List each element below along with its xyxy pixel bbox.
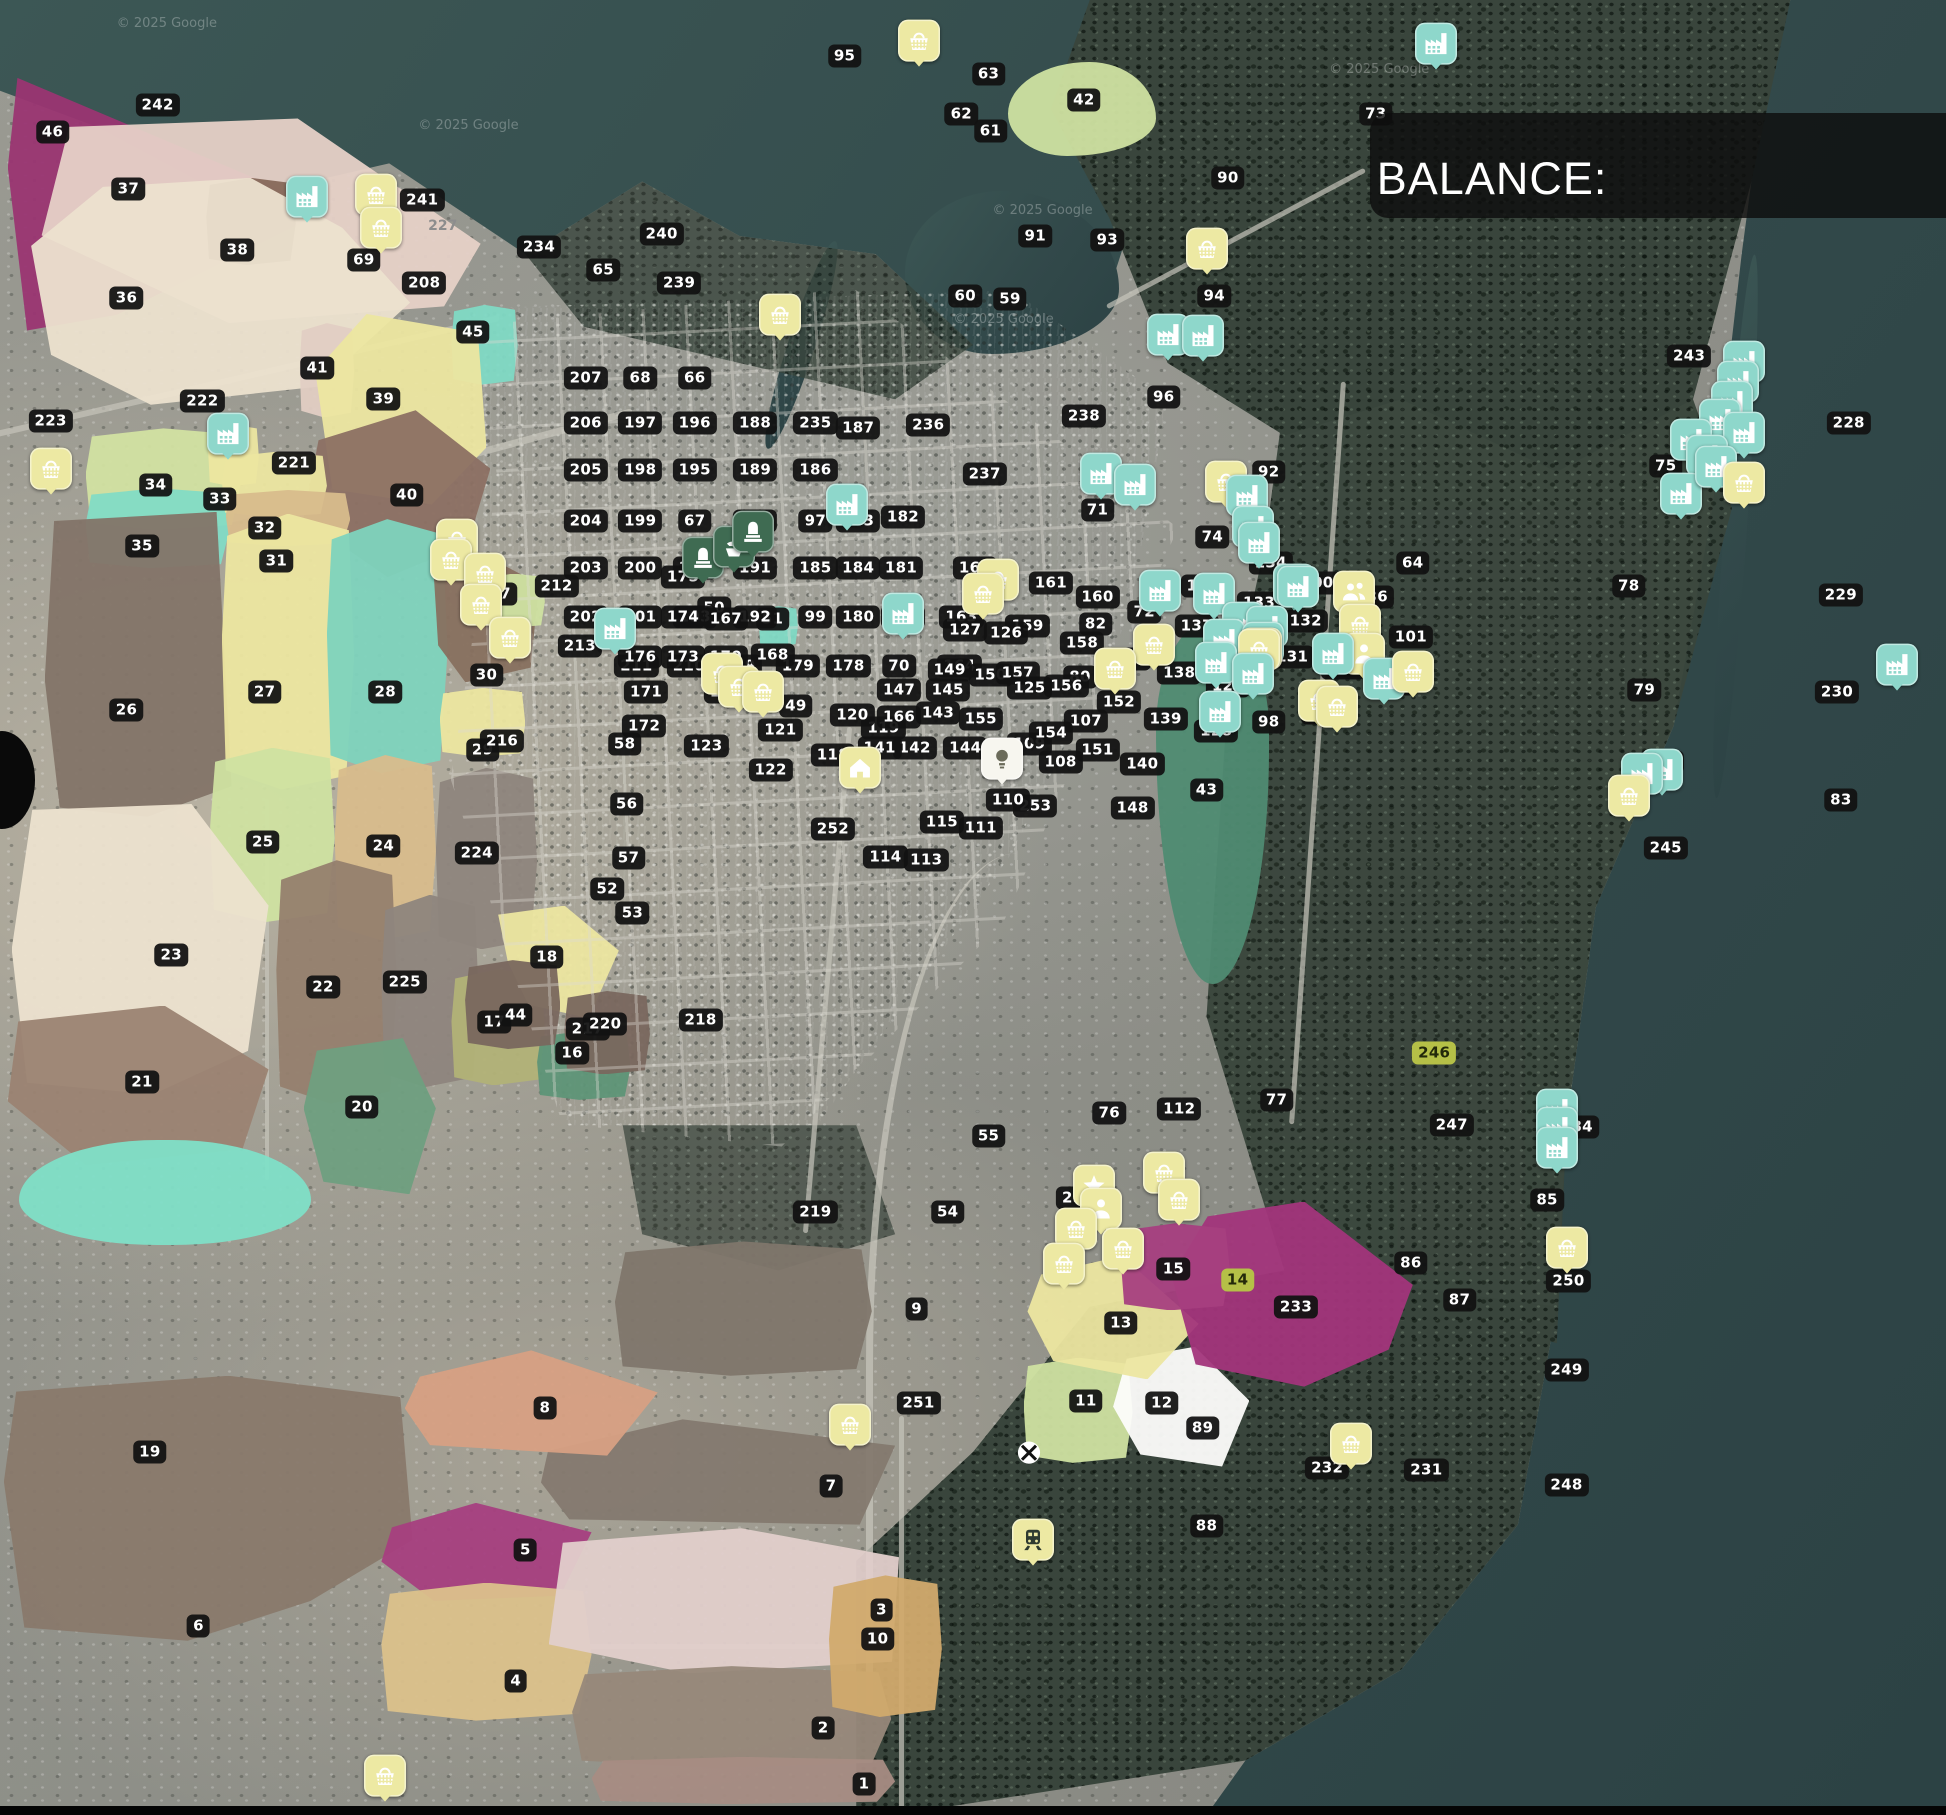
factory-icon[interactable] xyxy=(1114,464,1156,506)
crossing-icon[interactable] xyxy=(1008,1431,1050,1473)
parcel-badge-52[interactable]: 52 xyxy=(590,878,623,901)
parcel-badge-23[interactable]: 23 xyxy=(154,943,187,966)
parcel-badge-83[interactable]: 83 xyxy=(1824,789,1857,812)
basket-icon[interactable] xyxy=(962,573,1004,615)
parcel-badge-196[interactable]: 196 xyxy=(673,411,717,434)
parcel-badge-151[interactable]: 151 xyxy=(1075,738,1119,761)
parcel-badge-143[interactable]: 143 xyxy=(916,702,960,725)
factory-icon[interactable] xyxy=(1139,569,1181,611)
parcel-badge-148[interactable]: 148 xyxy=(1110,796,1154,819)
parcel-badge-205[interactable]: 205 xyxy=(564,459,608,482)
parcel-badge-200[interactable]: 200 xyxy=(618,557,662,580)
parcel-badge-208[interactable]: 208 xyxy=(402,272,446,295)
parcel-badge-60[interactable]: 60 xyxy=(948,284,981,307)
parcel-badge-79[interactable]: 79 xyxy=(1628,678,1661,701)
parcel-badge-218[interactable]: 218 xyxy=(678,1009,722,1032)
basket-icon[interactable] xyxy=(898,19,940,61)
parcel-badge-15[interactable]: 15 xyxy=(1157,1257,1190,1280)
map-watermark: © 2025 Google xyxy=(1329,62,1429,77)
parcel-badge-49[interactable]: 49 xyxy=(779,695,812,718)
factory-icon[interactable] xyxy=(207,413,249,455)
parcel-badge-206[interactable]: 206 xyxy=(564,411,608,434)
basket-icon[interactable] xyxy=(1186,228,1228,270)
parcel-region[interactable] xyxy=(19,1140,311,1245)
map-watermark: © 2025 Google xyxy=(954,312,1054,327)
parcel-badge-161[interactable]: 161 xyxy=(1029,571,1073,594)
parcel-badge-57[interactable]: 57 xyxy=(612,847,645,870)
parcel-badge-230[interactable]: 230 xyxy=(1815,680,1859,703)
parcel-badge-219[interactable]: 219 xyxy=(793,1201,837,1224)
parcel-badge-38[interactable]: 38 xyxy=(221,239,254,262)
basket-icon[interactable] xyxy=(1546,1226,1588,1268)
parcel-badge-197[interactable]: 197 xyxy=(618,411,662,434)
parcel-badge-28[interactable]: 28 xyxy=(369,680,402,703)
parcel-badge-61[interactable]: 61 xyxy=(974,119,1007,142)
parcel-badge-4[interactable]: 4 xyxy=(504,1669,527,1692)
parcel-badge-167[interactable]: 167 xyxy=(704,607,748,630)
parcel-badge-96[interactable]: 96 xyxy=(1147,386,1180,409)
parcel-badge-18[interactable]: 18 xyxy=(530,945,563,968)
parcel-badge-6[interactable]: 6 xyxy=(187,1615,210,1638)
parcel-badge-139[interactable]: 139 xyxy=(1144,707,1188,730)
parcel-badge-173[interactable]: 173 xyxy=(661,646,705,669)
parcel-badge-89[interactable]: 89 xyxy=(1186,1417,1219,1440)
parcel-badge-26[interactable]: 26 xyxy=(110,698,143,721)
parcel-badge-204[interactable]: 204 xyxy=(564,509,608,532)
parcel-badge-21[interactable]: 21 xyxy=(125,1070,158,1093)
parcel-badge-87[interactable]: 87 xyxy=(1443,1288,1476,1311)
parcel-badge-113[interactable]: 113 xyxy=(904,849,948,872)
basket-icon[interactable] xyxy=(489,616,531,658)
parcel-badge-41[interactable]: 41 xyxy=(300,357,333,380)
parcel-region[interactable] xyxy=(327,519,448,773)
parcel-badge-229[interactable]: 229 xyxy=(1819,584,1863,607)
parcel-region[interactable] xyxy=(592,1757,896,1804)
parcel-badge-98[interactable]: 98 xyxy=(1252,711,1285,734)
map-watermark: © 2025 Google xyxy=(418,118,518,133)
parcel-badge-16[interactable]: 16 xyxy=(555,1041,588,1064)
parcel-badge-249[interactable]: 249 xyxy=(1544,1359,1588,1382)
parcel-badge-122[interactable]: 122 xyxy=(749,758,793,781)
parcel-badge-246[interactable]: 246 xyxy=(1412,1041,1456,1064)
parcel-badge-251[interactable]: 251 xyxy=(896,1391,940,1414)
parcel-badge-203[interactable]: 203 xyxy=(564,557,608,580)
basket-icon[interactable] xyxy=(1723,462,1765,504)
map-watermark: © 2025 Google xyxy=(992,203,1092,218)
factory-icon[interactable] xyxy=(1199,691,1241,733)
parcel-badge-14[interactable]: 14 xyxy=(1221,1268,1254,1291)
parcel-badge-172[interactable]: 172 xyxy=(622,715,666,738)
factory-icon[interactable] xyxy=(1312,633,1354,675)
basket-icon[interactable] xyxy=(1102,1228,1144,1270)
parcel-badge-33[interactable]: 33 xyxy=(203,488,236,511)
parcel-badge-55[interactable]: 55 xyxy=(972,1125,1005,1148)
parcel-badge-220[interactable]: 220 xyxy=(583,1012,627,1035)
parcel-region[interactable] xyxy=(615,1241,872,1375)
factory-icon[interactable] xyxy=(1232,653,1274,695)
parcel-badge-11[interactable]: 11 xyxy=(1069,1390,1102,1413)
parcel-badge-236[interactable]: 236 xyxy=(906,413,950,436)
parcel-badge-5[interactable]: 5 xyxy=(514,1539,537,1562)
badge-227[interactable]: 227 xyxy=(428,218,457,234)
parcel-badge-181[interactable]: 181 xyxy=(879,557,923,580)
parcel-badge-184[interactable]: 184 xyxy=(836,557,880,580)
parcel-badge-145[interactable]: 145 xyxy=(926,678,970,701)
parcel-badge-85[interactable]: 85 xyxy=(1530,1188,1563,1211)
parcel-badge-7[interactable]: 7 xyxy=(820,1475,843,1498)
factory-icon[interactable] xyxy=(1238,522,1280,564)
parcel-badge-19[interactable]: 19 xyxy=(133,1441,166,1464)
parcel-badge-66[interactable]: 66 xyxy=(678,366,711,389)
parcel-badge-68[interactable]: 68 xyxy=(623,366,656,389)
parcel-badge-9[interactable]: 9 xyxy=(905,1297,928,1320)
parcel-badge-185[interactable]: 185 xyxy=(793,557,837,580)
parcel-badge-27[interactable]: 27 xyxy=(248,680,281,703)
bulb-icon[interactable] xyxy=(981,738,1023,780)
basket-icon[interactable] xyxy=(1330,1422,1372,1464)
parcel-badge-155[interactable]: 155 xyxy=(959,707,1003,730)
parcel-badge-110[interactable]: 110 xyxy=(986,789,1030,812)
parcel-badge-112[interactable]: 112 xyxy=(1157,1097,1201,1120)
parcel-badge-238[interactable]: 238 xyxy=(1062,404,1106,427)
parcel-badge-25[interactable]: 25 xyxy=(246,831,279,854)
parcel-badge-239[interactable]: 239 xyxy=(657,272,701,295)
home-icon[interactable] xyxy=(839,747,881,789)
parcel-badge-228[interactable]: 228 xyxy=(1827,411,1871,434)
basket-icon[interactable] xyxy=(30,448,72,490)
parcel-badge-39[interactable]: 39 xyxy=(367,388,400,411)
parcel-badge-240[interactable]: 240 xyxy=(640,223,684,246)
parcel-badge-223[interactable]: 223 xyxy=(28,410,72,433)
parcel-badge-101[interactable]: 101 xyxy=(1389,626,1433,649)
parcel-badge-187[interactable]: 187 xyxy=(836,417,880,440)
parcel-badge-233[interactable]: 233 xyxy=(1274,1295,1318,1318)
parcel-badge-13[interactable]: 13 xyxy=(1104,1312,1137,1335)
factory-icon[interactable] xyxy=(1182,315,1224,357)
parcel-badge-36[interactable]: 36 xyxy=(110,286,143,309)
parcel-badge-99[interactable]: 99 xyxy=(799,606,832,629)
basket-icon[interactable] xyxy=(364,1754,406,1796)
parcel-badge-20[interactable]: 20 xyxy=(345,1096,378,1119)
parcel-badge-1[interactable]: 1 xyxy=(853,1773,876,1796)
game-map-stage: 4624237383624169208454139234652402399563… xyxy=(0,0,1946,1815)
parcel-badge-195[interactable]: 195 xyxy=(673,459,717,482)
parcel-badge-111[interactable]: 111 xyxy=(959,816,1003,839)
train-icon[interactable] xyxy=(1012,1518,1054,1560)
parcel-badge-2[interactable]: 2 xyxy=(812,1716,835,1739)
parcel-badge-140[interactable]: 140 xyxy=(1120,753,1164,776)
parcel-badge-188[interactable]: 188 xyxy=(733,411,777,434)
parcel-badge-65[interactable]: 65 xyxy=(587,259,620,282)
parcel-badge-247[interactable]: 247 xyxy=(1430,1114,1474,1137)
parcel-badge-123[interactable]: 123 xyxy=(684,734,728,757)
parcel-badge-174[interactable]: 174 xyxy=(661,606,705,629)
parcel-badge-182[interactable]: 182 xyxy=(881,506,925,529)
parcel-badge-78[interactable]: 78 xyxy=(1612,575,1645,598)
parcel-badge-64[interactable]: 64 xyxy=(1396,551,1429,574)
basket-icon[interactable] xyxy=(1094,647,1136,689)
parcel-badge-63[interactable]: 63 xyxy=(972,63,1005,86)
parcel-badge-35[interactable]: 35 xyxy=(125,535,158,558)
parcel-badge-126[interactable]: 126 xyxy=(984,622,1028,645)
parcel-badge-67[interactable]: 67 xyxy=(678,509,711,532)
factory-icon[interactable] xyxy=(1536,1126,1578,1168)
parcel-badge-178[interactable]: 178 xyxy=(826,655,870,678)
parcel-badge-56[interactable]: 56 xyxy=(610,793,643,816)
parcel-badge-3[interactable]: 3 xyxy=(870,1598,893,1621)
parcel-badge-224[interactable]: 224 xyxy=(455,842,499,865)
parcel-badge-221[interactable]: 221 xyxy=(272,451,316,474)
factory-icon[interactable] xyxy=(882,593,924,635)
balance-panel: BALANCE: xyxy=(1370,113,1946,218)
parcel-badge-59[interactable]: 59 xyxy=(993,288,1026,311)
basket-icon[interactable] xyxy=(1158,1179,1200,1221)
parcel-badge-22[interactable]: 22 xyxy=(306,976,339,999)
parcel-badge-207[interactable]: 207 xyxy=(564,366,608,389)
parcel-badge-86[interactable]: 86 xyxy=(1394,1252,1427,1275)
parcel-badge-198[interactable]: 198 xyxy=(618,459,662,482)
parcel-badge-44[interactable]: 44 xyxy=(499,1003,532,1026)
parcel-badge-243[interactable]: 243 xyxy=(1667,344,1711,367)
parcel-badge-12[interactable]: 12 xyxy=(1145,1391,1178,1414)
parcel-badge-248[interactable]: 248 xyxy=(1544,1473,1588,1496)
parcel-badge-40[interactable]: 40 xyxy=(390,484,423,507)
bottom-bar xyxy=(0,1806,1946,1815)
parcel-badge-154[interactable]: 154 xyxy=(1029,722,1073,745)
parcel-badge-216[interactable]: 216 xyxy=(480,729,524,752)
parcel-badge-199[interactable]: 199 xyxy=(618,509,662,532)
factory-icon[interactable] xyxy=(286,175,328,217)
parcel-badge-91[interactable]: 91 xyxy=(1019,224,1052,247)
parcel-badge-34[interactable]: 34 xyxy=(139,473,172,496)
parcel-badge-53[interactable]: 53 xyxy=(616,901,649,924)
parcel-badge-189[interactable]: 189 xyxy=(733,459,777,482)
parcel-badge-10[interactable]: 10 xyxy=(861,1627,894,1650)
factory-icon[interactable] xyxy=(826,484,868,526)
parcel-badge-76[interactable]: 76 xyxy=(1092,1101,1125,1124)
parcel-badge-45[interactable]: 45 xyxy=(456,321,489,344)
parcel-badge-241[interactable]: 241 xyxy=(400,188,444,211)
factory-icon[interactable] xyxy=(594,607,636,649)
parcel-badge-114[interactable]: 114 xyxy=(863,845,907,868)
parcel-badge-180[interactable]: 180 xyxy=(836,606,880,629)
parcel-badge-54[interactable]: 54 xyxy=(931,1201,964,1224)
parcel-badge-149[interactable]: 149 xyxy=(928,658,972,681)
parcel-badge-125[interactable]: 125 xyxy=(1007,676,1051,699)
parcel-badge-160[interactable]: 160 xyxy=(1075,586,1119,609)
parcel-badge-235[interactable]: 235 xyxy=(793,411,837,434)
parcel-badge-42[interactable]: 42 xyxy=(1067,88,1100,111)
parcel-badge-77[interactable]: 77 xyxy=(1260,1088,1293,1111)
parcel-badge-8[interactable]: 8 xyxy=(534,1397,557,1420)
basket-icon[interactable] xyxy=(742,671,784,713)
parcel-badge-120[interactable]: 120 xyxy=(830,704,874,727)
parcel-badge-234[interactable]: 234 xyxy=(517,235,561,258)
parcel-badge-30[interactable]: 30 xyxy=(470,664,503,687)
parcel-badge-74[interactable]: 74 xyxy=(1196,526,1229,549)
parcel-badge-166[interactable]: 166 xyxy=(877,705,921,728)
parcel-badge-37[interactable]: 37 xyxy=(112,177,145,200)
parcel-badge-70[interactable]: 70 xyxy=(882,655,915,678)
parcel-badge-88[interactable]: 88 xyxy=(1190,1515,1223,1538)
parcel-badge-46[interactable]: 46 xyxy=(36,121,69,144)
balance-label: BALANCE: xyxy=(1377,153,1608,205)
basket-icon[interactable] xyxy=(829,1404,871,1446)
parcel-badge-245[interactable]: 245 xyxy=(1644,836,1688,859)
map-watermark: © 2025 Google xyxy=(117,16,217,31)
factory-icon[interactable] xyxy=(1195,642,1237,684)
parcel-badge-31[interactable]: 31 xyxy=(260,549,293,572)
basket-icon[interactable] xyxy=(1316,685,1358,727)
basket-icon[interactable] xyxy=(1608,774,1650,816)
basket-icon[interactable] xyxy=(360,206,402,248)
parcel-badge-168[interactable]: 168 xyxy=(750,644,794,667)
parcel-badge-252[interactable]: 252 xyxy=(811,818,855,841)
parcel-badge-242[interactable]: 242 xyxy=(136,94,180,117)
parcel-badge-231[interactable]: 231 xyxy=(1404,1459,1448,1482)
factory-icon[interactable] xyxy=(1277,566,1319,608)
parcel-badge-171[interactable]: 171 xyxy=(624,680,668,703)
monument-icon[interactable] xyxy=(732,511,774,553)
basket-icon[interactable] xyxy=(1043,1242,1085,1284)
parcel-badge-147[interactable]: 147 xyxy=(877,678,921,701)
parcel-badge-115[interactable]: 115 xyxy=(920,811,964,834)
factory-icon[interactable] xyxy=(1876,644,1918,686)
basket-icon[interactable] xyxy=(1133,624,1175,666)
parcel-badge-43[interactable]: 43 xyxy=(1190,778,1223,801)
parcel-badge-24[interactable]: 24 xyxy=(367,834,400,857)
parcel-badge-32[interactable]: 32 xyxy=(248,517,281,540)
parcel-badge-90[interactable]: 90 xyxy=(1211,166,1244,189)
factory-icon[interactable] xyxy=(1415,23,1457,65)
parcel-badge-93[interactable]: 93 xyxy=(1091,228,1124,251)
parcel-badge-94[interactable]: 94 xyxy=(1198,284,1231,307)
parcel-badge-95[interactable]: 95 xyxy=(828,45,861,68)
parcel-badge-225[interactable]: 225 xyxy=(383,970,427,993)
basket-icon[interactable] xyxy=(759,293,801,335)
parcel-badge-186[interactable]: 186 xyxy=(793,459,837,482)
parcel-badge-222[interactable]: 222 xyxy=(180,390,224,413)
basket-icon[interactable] xyxy=(1392,651,1434,693)
parcel-badge-237[interactable]: 237 xyxy=(963,462,1007,485)
